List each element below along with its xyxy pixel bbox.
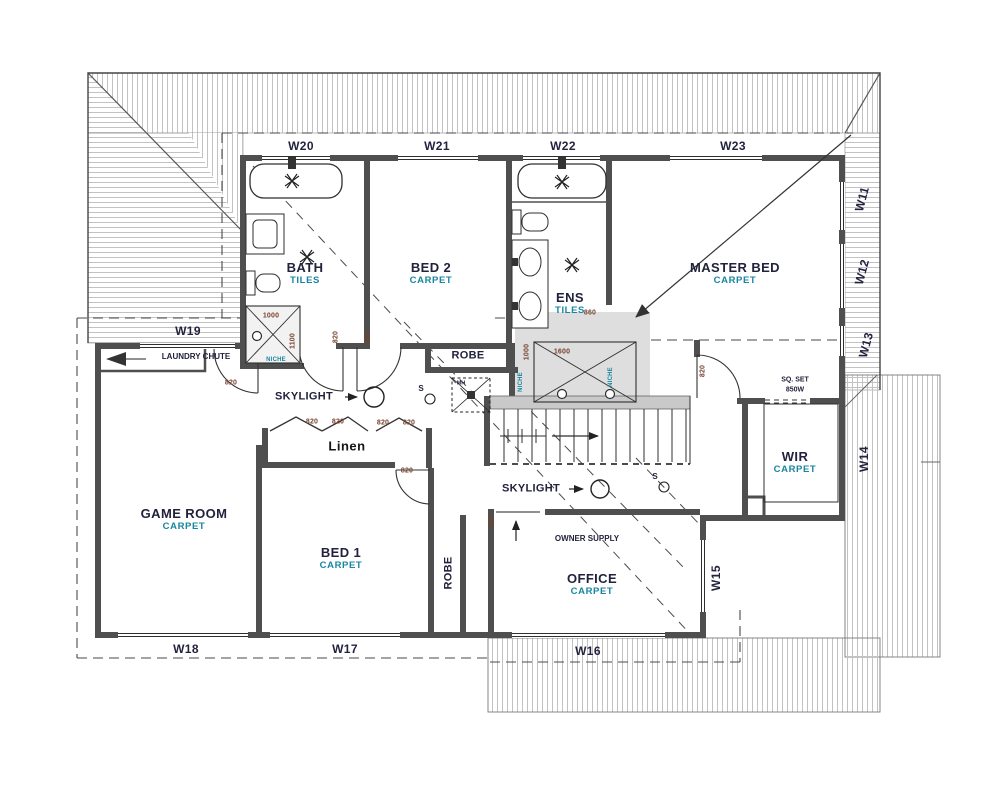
room-name: BED 1 xyxy=(320,546,363,559)
dim-ens-niche-left: NICHE xyxy=(518,372,524,392)
room-label-bed2: BED 2 CARPET xyxy=(410,261,453,286)
dim-office-opening: 800 xyxy=(489,515,496,527)
laundry-chute-label: LAUNDRY CHUTE xyxy=(162,353,230,361)
ridge-line xyxy=(636,135,851,317)
room-name: BATH xyxy=(287,261,324,274)
laundry-chute-arrow-icon xyxy=(106,352,126,366)
window-label-w21: W21 xyxy=(424,140,450,152)
room-name: ENS xyxy=(555,291,585,304)
skylight-lower-label: SKYLIGHT xyxy=(502,484,560,495)
dim-game-door: 820 xyxy=(225,380,237,387)
exhaust-fan-icon xyxy=(565,258,579,272)
room-label-game: GAME ROOM CARPET xyxy=(141,507,228,532)
dim-bed1-door: 820 xyxy=(401,468,413,475)
room-label-wir: WIR CARPET xyxy=(774,450,817,475)
dim-linen-door-l2: 820 xyxy=(332,419,344,426)
robe-bed1-label: ROBE xyxy=(444,557,455,590)
room-finish: TILES xyxy=(555,306,585,316)
room-label-office: OFFICE CARPET xyxy=(567,572,617,597)
dim-linen-door-l1: 820 xyxy=(306,419,318,426)
dim-ens-niche-right: NICHE xyxy=(608,367,614,387)
robe-bed2-label: ROBE xyxy=(452,351,485,362)
room-finish: CARPET xyxy=(690,276,780,286)
room-finish: TILES xyxy=(287,276,324,286)
room-finish: CARPET xyxy=(320,561,363,571)
window-label-w22: W22 xyxy=(550,140,576,152)
floorplan-linework xyxy=(0,0,1000,800)
manhole-label: MH xyxy=(457,381,466,387)
linen-label: Linen xyxy=(328,440,365,453)
room-finish: CARPET xyxy=(774,465,817,475)
smoke-lower-label: S xyxy=(652,473,657,481)
room-finish: CARPET xyxy=(410,276,453,286)
dim-linen-door-r2: 820 xyxy=(403,420,415,427)
window-label-w23: W23 xyxy=(720,140,746,152)
dim-master-door: 820 xyxy=(700,365,707,377)
skylight-upper-label: SKYLIGHT xyxy=(275,392,333,403)
dim-ens-shower-depth: 1000 xyxy=(524,344,531,360)
dim-ens-opening: 860 xyxy=(584,310,596,317)
sq-set-label-line2: 850W xyxy=(786,387,804,394)
room-name: BED 2 xyxy=(410,261,453,274)
dim-bath-niche: NICHE xyxy=(266,357,286,363)
room-name: WIR xyxy=(774,450,817,463)
room-finish: CARPET xyxy=(141,522,228,532)
room-label-bath: BATH TILES xyxy=(287,261,324,286)
window-label-w14: W14 xyxy=(858,446,870,472)
floor-plan: W20 W21 W22 W23 W19 W18 W17 W16 W15 W14 … xyxy=(0,0,1000,800)
smoke-upper-label: S xyxy=(418,385,423,393)
dim-linen-door-r1: 820 xyxy=(377,420,389,427)
room-finish: CARPET xyxy=(567,587,617,597)
window-label-w18: W18 xyxy=(173,643,199,655)
room-name: MASTER BED xyxy=(690,261,780,274)
dim-bath-shower-depth: 1100 xyxy=(290,333,297,349)
window-label-w15: W15 xyxy=(710,565,722,591)
room-label-ens: ENS TILES xyxy=(555,291,585,316)
dim-bed2-door: 820 xyxy=(365,331,372,343)
stairs xyxy=(490,396,690,464)
room-label-master: MASTER BED CARPET xyxy=(690,261,780,286)
room-name: GAME ROOM xyxy=(141,507,228,520)
dim-ens-shower-width: 1600 xyxy=(554,349,570,356)
dim-bath-door: 820 xyxy=(333,331,340,343)
window-label-w17: W17 xyxy=(332,643,358,655)
skylight-circle-icon xyxy=(364,387,384,407)
room-label-bed1: BED 1 CARPET xyxy=(320,546,363,571)
window-label-w16: W16 xyxy=(575,645,601,657)
skylight-circle-icon xyxy=(591,480,609,498)
owner-supply-label: OWNER SUPPLY xyxy=(555,535,619,543)
smoke-alarm-icon xyxy=(425,394,435,404)
sq-set-label-line1: SQ. SET xyxy=(781,377,809,384)
room-name: OFFICE xyxy=(567,572,617,585)
window-label-w20: W20 xyxy=(288,140,314,152)
dim-bath-shower-width: 1000 xyxy=(263,313,279,320)
window-label-w19: W19 xyxy=(175,325,201,337)
